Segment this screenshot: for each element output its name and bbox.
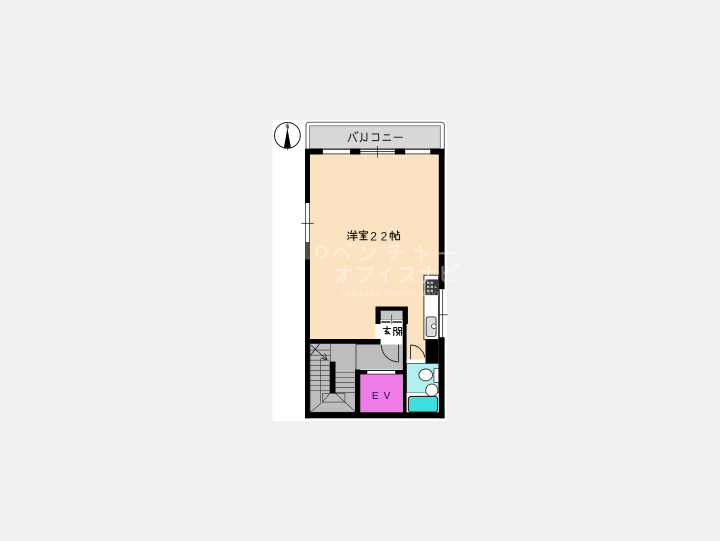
svg-text:2: 2 <box>381 230 388 244</box>
svg-text:E: E <box>372 391 379 402</box>
svg-text:VENTURE OFFICE NAVI: VENTURE OFFICE NAVI <box>340 289 440 298</box>
svg-text:N: N <box>285 124 289 130</box>
svg-text:2: 2 <box>370 230 377 244</box>
svg-text:V: V <box>384 391 391 402</box>
